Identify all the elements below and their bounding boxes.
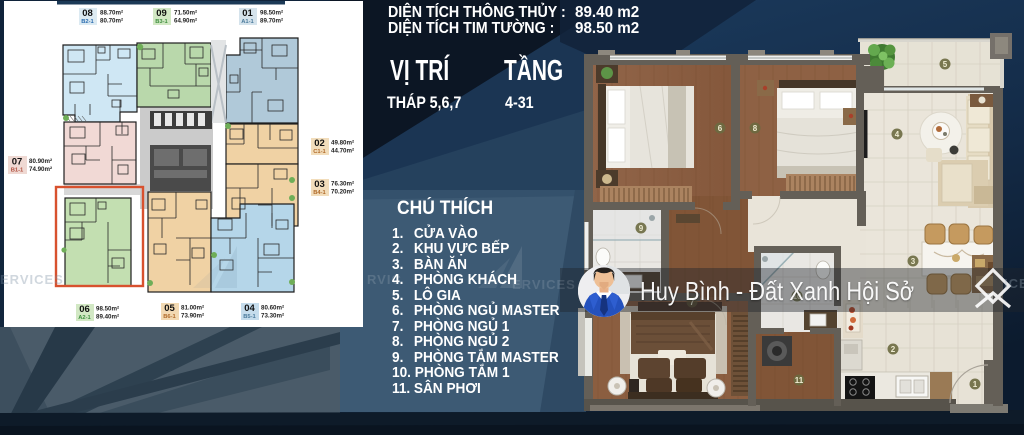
svg-text:3: 3 xyxy=(911,257,916,266)
svg-text:2: 2 xyxy=(891,345,896,354)
svg-text:6: 6 xyxy=(718,124,723,133)
svg-text:11: 11 xyxy=(795,376,804,385)
svg-text:1: 1 xyxy=(973,380,978,389)
svg-text:8: 8 xyxy=(753,124,758,133)
svg-text:5: 5 xyxy=(943,60,948,69)
svg-text:4: 4 xyxy=(895,130,900,139)
svg-text:9: 9 xyxy=(639,224,644,233)
